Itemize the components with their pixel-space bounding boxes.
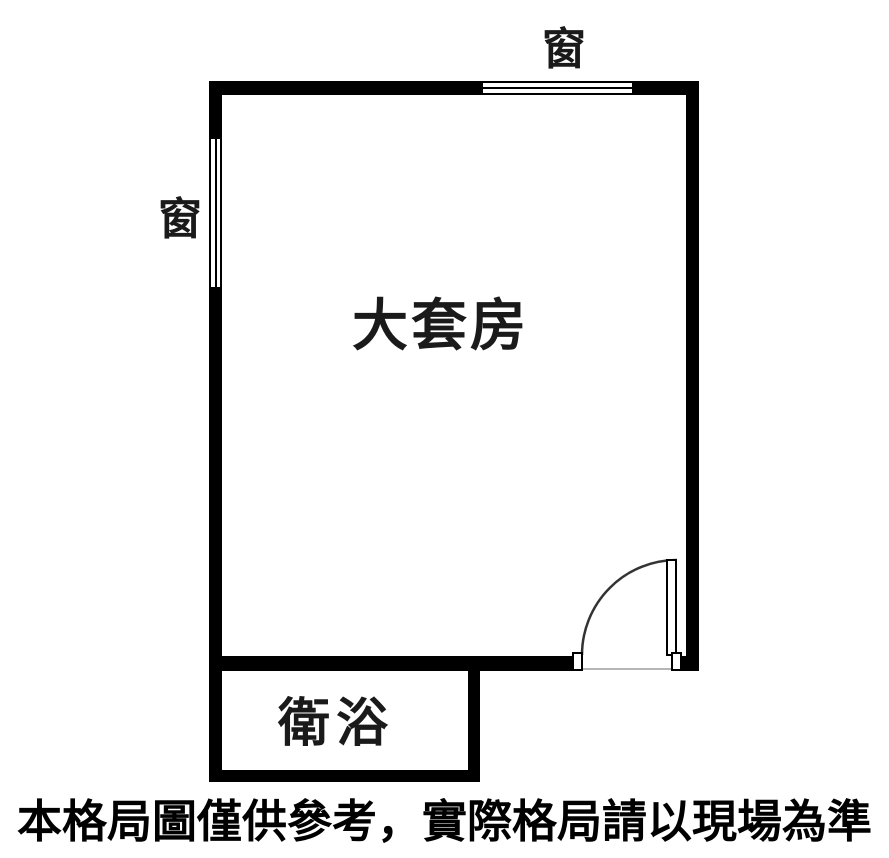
floor-plan: 大套房 衛浴 窗 窗 本格局圖僅供參考，實際格局請以現場為準 [0, 0, 889, 858]
door-jamb-right [671, 652, 682, 671]
window-left-label: 窗 [158, 198, 202, 242]
door-jamb-left [572, 652, 583, 671]
door-leaf-icon [666, 559, 677, 656]
window-top-icon [483, 81, 632, 95]
window-top-mullion [483, 87, 632, 89]
bathroom-label: 衛浴 [278, 698, 394, 750]
disclaimer-text: 本格局圖僅供參考，實際格局請以現場為準 [0, 797, 889, 847]
main-room-label: 大套房 [352, 299, 529, 355]
window-top-label: 窗 [542, 28, 586, 72]
window-left-mullion [215, 139, 217, 287]
window-left-icon [209, 139, 222, 287]
